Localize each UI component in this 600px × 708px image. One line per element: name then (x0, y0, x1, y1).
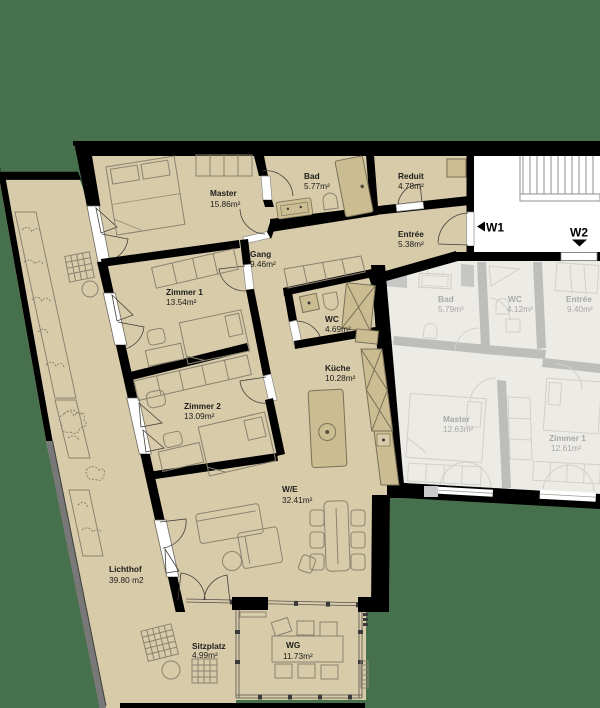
svg-text:W/E: W/E (282, 484, 298, 494)
svg-text:Entrée: Entrée (566, 294, 592, 304)
svg-text:Entrée: Entrée (398, 229, 424, 239)
svg-text:Master: Master (443, 414, 471, 424)
svg-text:11.73m²: 11.73m² (283, 651, 313, 661)
svg-text:Bad: Bad (438, 294, 454, 304)
svg-text:5.77m²: 5.77m² (304, 181, 330, 191)
svg-text:Reduit: Reduit (398, 171, 424, 181)
svg-text:Lichthof: Lichthof (109, 564, 142, 574)
svg-text:WG: WG (286, 640, 300, 650)
svg-text:5.79m²: 5.79m² (438, 304, 464, 314)
svg-text:Master: Master (210, 188, 238, 198)
svg-text:Zimmer 1: Zimmer 1 (166, 287, 203, 297)
svg-text:39.80 m2: 39.80 m2 (109, 575, 144, 585)
svg-text:4.12m²: 4.12m² (507, 304, 533, 314)
svg-text:12.63m²: 12.63m² (443, 424, 474, 434)
svg-text:15.86m²: 15.86m² (210, 199, 241, 209)
svg-text:9.40m²: 9.40m² (567, 304, 593, 314)
svg-text:13.09m²: 13.09m² (184, 411, 215, 421)
svg-text:32.41m²: 32.41m² (282, 495, 313, 505)
svg-text:WC: WC (508, 294, 522, 304)
svg-text:9.46m²: 9.46m² (250, 259, 276, 269)
svg-text:Küche: Küche (325, 363, 351, 373)
svg-text:W1: W1 (486, 221, 504, 235)
svg-text:10.28m²: 10.28m² (325, 373, 356, 383)
svg-text:Zimmer 2: Zimmer 2 (184, 401, 221, 411)
svg-text:13.54m²: 13.54m² (166, 297, 197, 307)
svg-text:12.61m²: 12.61m² (551, 443, 582, 453)
svg-text:WC: WC (325, 314, 339, 324)
svg-text:5.38m²: 5.38m² (398, 239, 424, 249)
svg-text:Gang: Gang (250, 249, 271, 259)
svg-text:Bad: Bad (304, 171, 320, 181)
svg-text:4.99m²: 4.99m² (192, 650, 218, 660)
svg-text:Zimmer 1: Zimmer 1 (549, 433, 586, 443)
svg-text:4.78m²: 4.78m² (398, 181, 424, 191)
svg-text:W2: W2 (570, 226, 588, 240)
svg-text:4.69m²: 4.69m² (325, 324, 351, 334)
